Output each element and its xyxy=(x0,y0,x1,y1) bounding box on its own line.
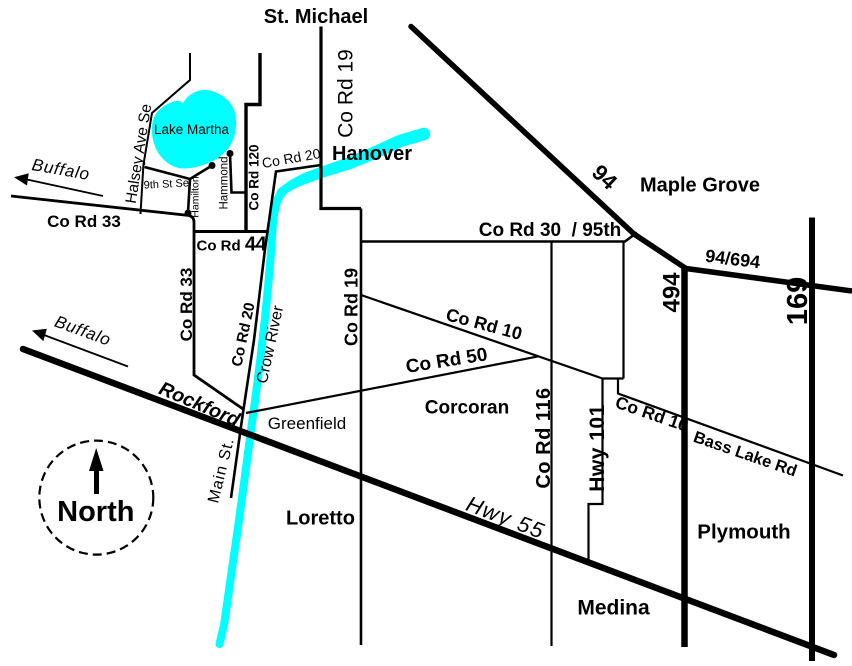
svg-text:Hwy 101: Hwy 101 xyxy=(586,404,609,492)
svg-text:Co Rd 19: Co Rd 19 xyxy=(342,268,362,346)
svg-text:Hamilton: Hamilton xyxy=(190,176,202,218)
svg-text:Plymouth: Plymouth xyxy=(697,521,790,544)
svg-text:Loretto: Loretto xyxy=(286,508,355,530)
svg-text:Co Rd 19: Co Rd 19 xyxy=(335,49,358,138)
svg-text:Greenfield: Greenfield xyxy=(268,414,346,433)
svg-text:North: North xyxy=(57,496,134,528)
svg-text:St. Michael: St. Michael xyxy=(264,6,368,28)
svg-text:Co Rd 33: Co Rd 33 xyxy=(177,268,196,342)
svg-text:Corcoran: Corcoran xyxy=(425,398,509,419)
svg-text:Hanover: Hanover xyxy=(332,143,412,165)
svg-text:9th St Se: 9th St Se xyxy=(143,177,189,191)
svg-text:Co Rd 116: Co Rd 116 xyxy=(533,387,555,488)
svg-text:Hammond: Hammond xyxy=(219,156,231,209)
svg-text:Co Rd 33: Co Rd 33 xyxy=(47,212,121,231)
svg-text:Co Rd 30 / 95th: Co Rd 30 / 95th xyxy=(479,220,622,241)
svg-text:Lake Martha: Lake Martha xyxy=(154,122,230,137)
svg-text:169: 169 xyxy=(782,277,814,325)
svg-text:Medina: Medina xyxy=(577,597,650,620)
svg-text:Co Rd 44: Co Rd 44 xyxy=(197,234,268,256)
svg-text:Maple Grove: Maple Grove xyxy=(640,175,760,197)
svg-text:494: 494 xyxy=(659,272,686,313)
svg-text:Co Rd 120: Co Rd 120 xyxy=(247,144,262,210)
